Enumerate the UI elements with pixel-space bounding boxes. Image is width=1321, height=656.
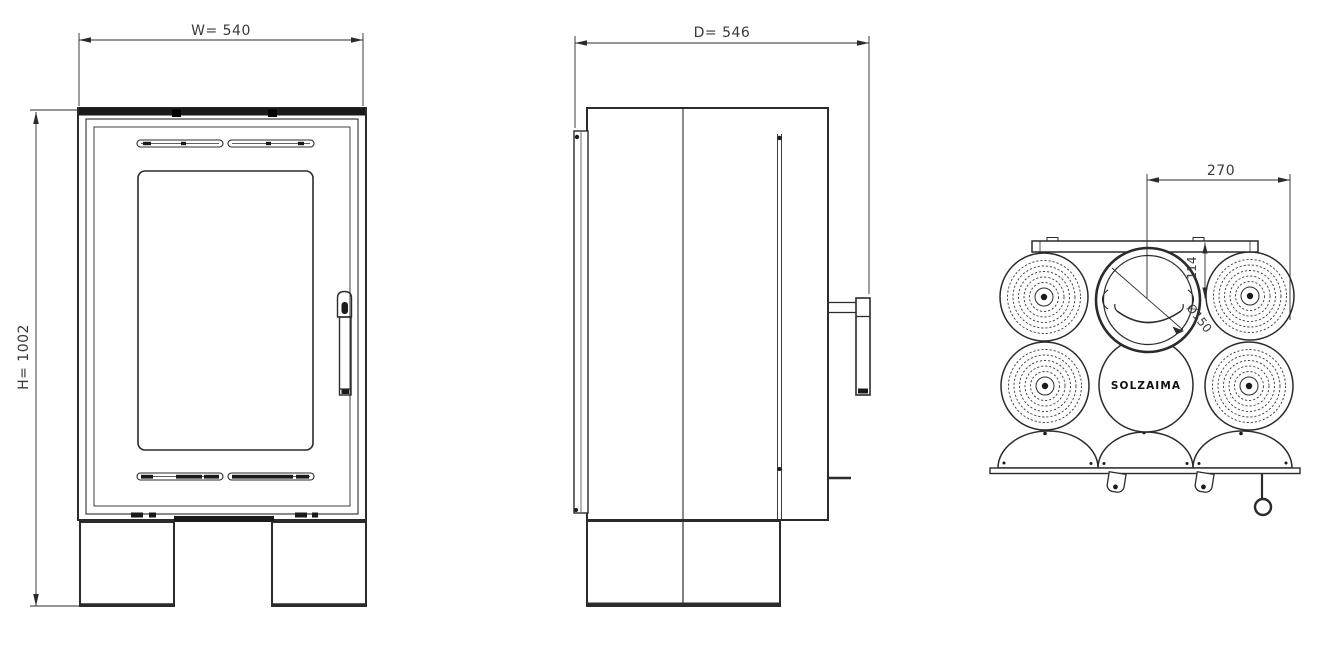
vent-damper-mark — [181, 142, 186, 145]
scallop-apex-dot — [1239, 432, 1243, 436]
technical-drawing-canvas: W= 540 H= 1002 — [0, 0, 1321, 656]
pull-ring — [1255, 499, 1271, 515]
hinge-pin-dot — [574, 508, 578, 512]
plate-fixing-mark — [172, 110, 181, 118]
bottom-latch-mark — [295, 513, 307, 518]
arrow-head — [33, 594, 39, 606]
height-extension-lines — [30, 110, 79, 606]
top-view: SOLZAIMA Ø150 270 114 — [990, 163, 1300, 515]
scallop-end-dot — [1103, 462, 1106, 465]
stove-body-side — [587, 108, 828, 520]
stove-three-view-drawing: W= 540 H= 1002 — [0, 0, 1321, 656]
arrow-head — [79, 37, 91, 43]
vent-damper-mark — [232, 475, 293, 479]
width-extension-lines — [79, 33, 363, 106]
scallop-end-dot — [1003, 462, 1006, 465]
arrow-head — [1147, 177, 1159, 183]
arrow-head — [1278, 177, 1290, 183]
height-dimension-label: H= 1002 — [16, 324, 32, 390]
brand-logo-text: SOLZAIMA — [1111, 380, 1181, 392]
stove-leg-right — [272, 522, 366, 606]
vent-damper-mark — [143, 142, 151, 145]
front-edge-bar — [990, 468, 1300, 474]
stove-leg-left — [80, 522, 174, 606]
offset-dimension-label: 270 — [1207, 163, 1235, 179]
fixing-tab-left — [1106, 472, 1126, 493]
vent-damper-mark — [176, 475, 202, 479]
seam-pin-dot — [777, 136, 781, 140]
bottom-dark-band — [174, 516, 274, 522]
arrow-head — [857, 40, 869, 46]
arrow-head — [575, 40, 587, 46]
front-scallop-arc-left — [998, 431, 1098, 468]
scallop-end-dot — [1198, 462, 1201, 465]
side-view: D= 546 — [574, 25, 870, 606]
door-handle-side — [856, 298, 870, 395]
vent-damper-mark — [141, 475, 153, 479]
front-scallop-arc-right — [1193, 431, 1292, 468]
bottom-latch-mark — [312, 513, 318, 518]
plate-fixing-mark — [268, 110, 277, 118]
seam-pin-dot — [778, 467, 782, 471]
arrow-head — [33, 112, 39, 124]
vent-damper-mark — [296, 475, 309, 479]
stove-body-front — [78, 108, 366, 520]
depth-dimension-label: D= 546 — [694, 25, 751, 41]
hinge-pin-dot — [575, 135, 579, 139]
bottom-latch-mark — [149, 513, 156, 518]
front-scallop-arc-middle — [1098, 432, 1193, 468]
handle-cap-fill — [858, 389, 868, 394]
width-dimension-label: W= 540 — [191, 23, 251, 39]
hotplate-rosette-top-right — [1206, 252, 1294, 340]
hotplate-rosette-top-left — [1000, 253, 1088, 341]
scallop-apex-dot — [1043, 432, 1047, 436]
scallop-end-dot — [1285, 462, 1288, 465]
arrow-head — [351, 37, 363, 43]
hotplate-rosette-bottom-right — [1205, 342, 1293, 430]
fixing-tab-right — [1194, 472, 1214, 493]
setback-dimension-label: 114 — [1185, 257, 1199, 280]
bottom-latch-mark — [131, 513, 143, 518]
front-view: W= 540 H= 1002 — [16, 23, 366, 606]
handle-lock-slot — [342, 302, 349, 314]
handle-mount-arm — [828, 303, 856, 313]
vent-damper-mark — [204, 475, 219, 479]
scallop-end-dot — [1186, 462, 1189, 465]
handle-cap-fill — [342, 390, 350, 395]
vent-damper-mark — [298, 142, 304, 145]
scallop-end-dot — [1090, 462, 1093, 465]
vent-damper-mark — [266, 142, 271, 145]
top-plate-edge — [79, 108, 365, 116]
hotplate-rosette-bottom-left — [1001, 342, 1089, 430]
